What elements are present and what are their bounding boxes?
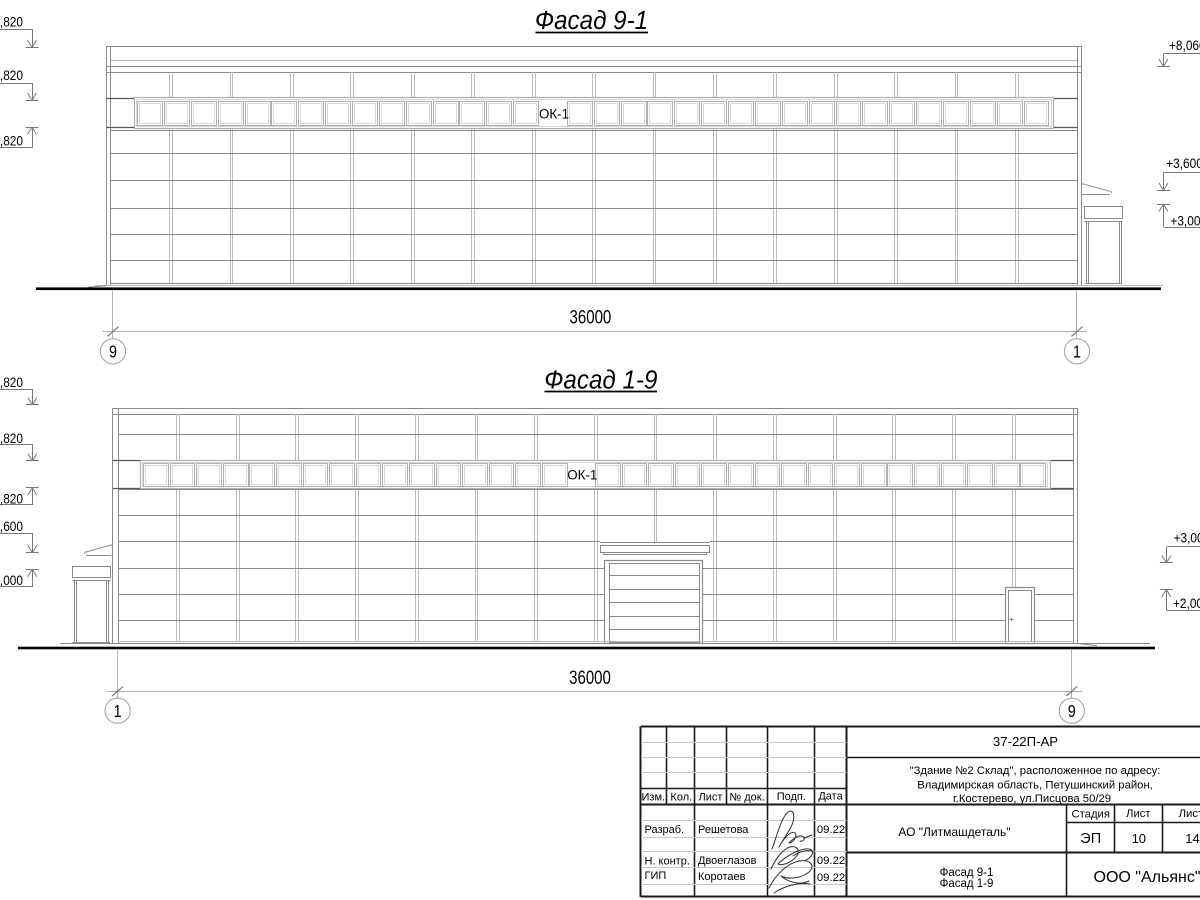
svg-text:Фасад 9-1: Фасад 9-1 <box>535 6 648 35</box>
svg-text:09.22: 09.22 <box>817 824 845 836</box>
svg-text:Коротаев: Коротаев <box>698 871 746 883</box>
svg-text:09.22: 09.22 <box>817 872 845 884</box>
svg-text:ООО "Альянс": ООО "Альянс" <box>1094 869 1200 886</box>
svg-text:Владимирская область, Петушинс: Владимирская область, Петушинский район, <box>917 779 1153 791</box>
svg-text:14: 14 <box>1185 831 1199 846</box>
svg-text:+6,820: +6,820 <box>0 67 23 83</box>
svg-text:Фасад 1-9: Фасад 1-9 <box>544 366 657 395</box>
svg-text:Разраб.: Разраб. <box>645 824 685 836</box>
svg-text:+3,600: +3,600 <box>0 518 23 534</box>
svg-text:ЭП: ЭП <box>1080 831 1101 847</box>
svg-text:+8,060: +8,060 <box>1169 37 1200 53</box>
svg-text:+6,820: +6,820 <box>0 374 23 390</box>
svg-text:+6,820: +6,820 <box>0 133 23 149</box>
svg-text:Изм.: Изм. <box>642 792 666 804</box>
svg-text:Лист: Лист <box>699 792 723 804</box>
svg-text:ГИП: ГИП <box>645 870 667 882</box>
svg-text:09.22: 09.22 <box>817 855 845 867</box>
svg-text:37-22П-АР: 37-22П-АР <box>993 734 1058 749</box>
svg-text:+3,000: +3,000 <box>1174 530 1200 546</box>
svg-text:Лист: Лист <box>1126 808 1151 820</box>
svg-text:+3,000: +3,000 <box>1170 213 1200 229</box>
svg-text:Фасад 9-1: Фасад 9-1 <box>940 867 994 879</box>
svg-text:36000: 36000 <box>570 305 612 327</box>
svg-text:+6,820: +6,820 <box>0 430 23 446</box>
svg-text:+6,820: +6,820 <box>0 14 23 30</box>
svg-text:Решетова: Решетова <box>698 824 749 836</box>
svg-text:+3,600: +3,600 <box>1166 155 1200 171</box>
svg-text:Подп.: Подп. <box>777 791 806 803</box>
svg-text:Стадия: Стадия <box>1071 809 1110 821</box>
svg-text:+2,000: +2,000 <box>1173 595 1200 611</box>
svg-text:9: 9 <box>1068 702 1076 722</box>
svg-text:АО "Литмашдеталь": АО "Литмашдеталь" <box>898 825 1010 839</box>
svg-text:1: 1 <box>114 702 122 722</box>
svg-text:Двоеглазов: Двоеглазов <box>698 855 757 867</box>
svg-text:Листов: Листов <box>1179 808 1200 820</box>
svg-text:"Здание №2 Склад", расположенн: "Здание №2 Склад", расположенное по адре… <box>910 765 1161 777</box>
svg-text:Н. контр.: Н. контр. <box>645 855 690 867</box>
svg-text:+3,000: +3,000 <box>0 572 23 588</box>
svg-text:Дата: Дата <box>818 791 843 803</box>
svg-text:№ док.: № док. <box>729 792 764 804</box>
svg-text:ОК-1: ОК-1 <box>539 106 569 121</box>
svg-text:г.Костерево, ул.Писцова 50/29: г.Костерево, ул.Писцова 50/29 <box>953 793 1111 805</box>
svg-text:10: 10 <box>1132 831 1146 846</box>
svg-text:+6,820: +6,820 <box>0 491 23 507</box>
svg-text:36000: 36000 <box>569 666 611 688</box>
svg-text:1: 1 <box>1073 342 1081 362</box>
svg-text:9: 9 <box>109 342 117 362</box>
svg-text:Кол.: Кол. <box>670 792 692 804</box>
svg-text:Фасад 1-9: Фасад 1-9 <box>940 878 994 890</box>
svg-text:ОК-1: ОК-1 <box>567 467 597 482</box>
